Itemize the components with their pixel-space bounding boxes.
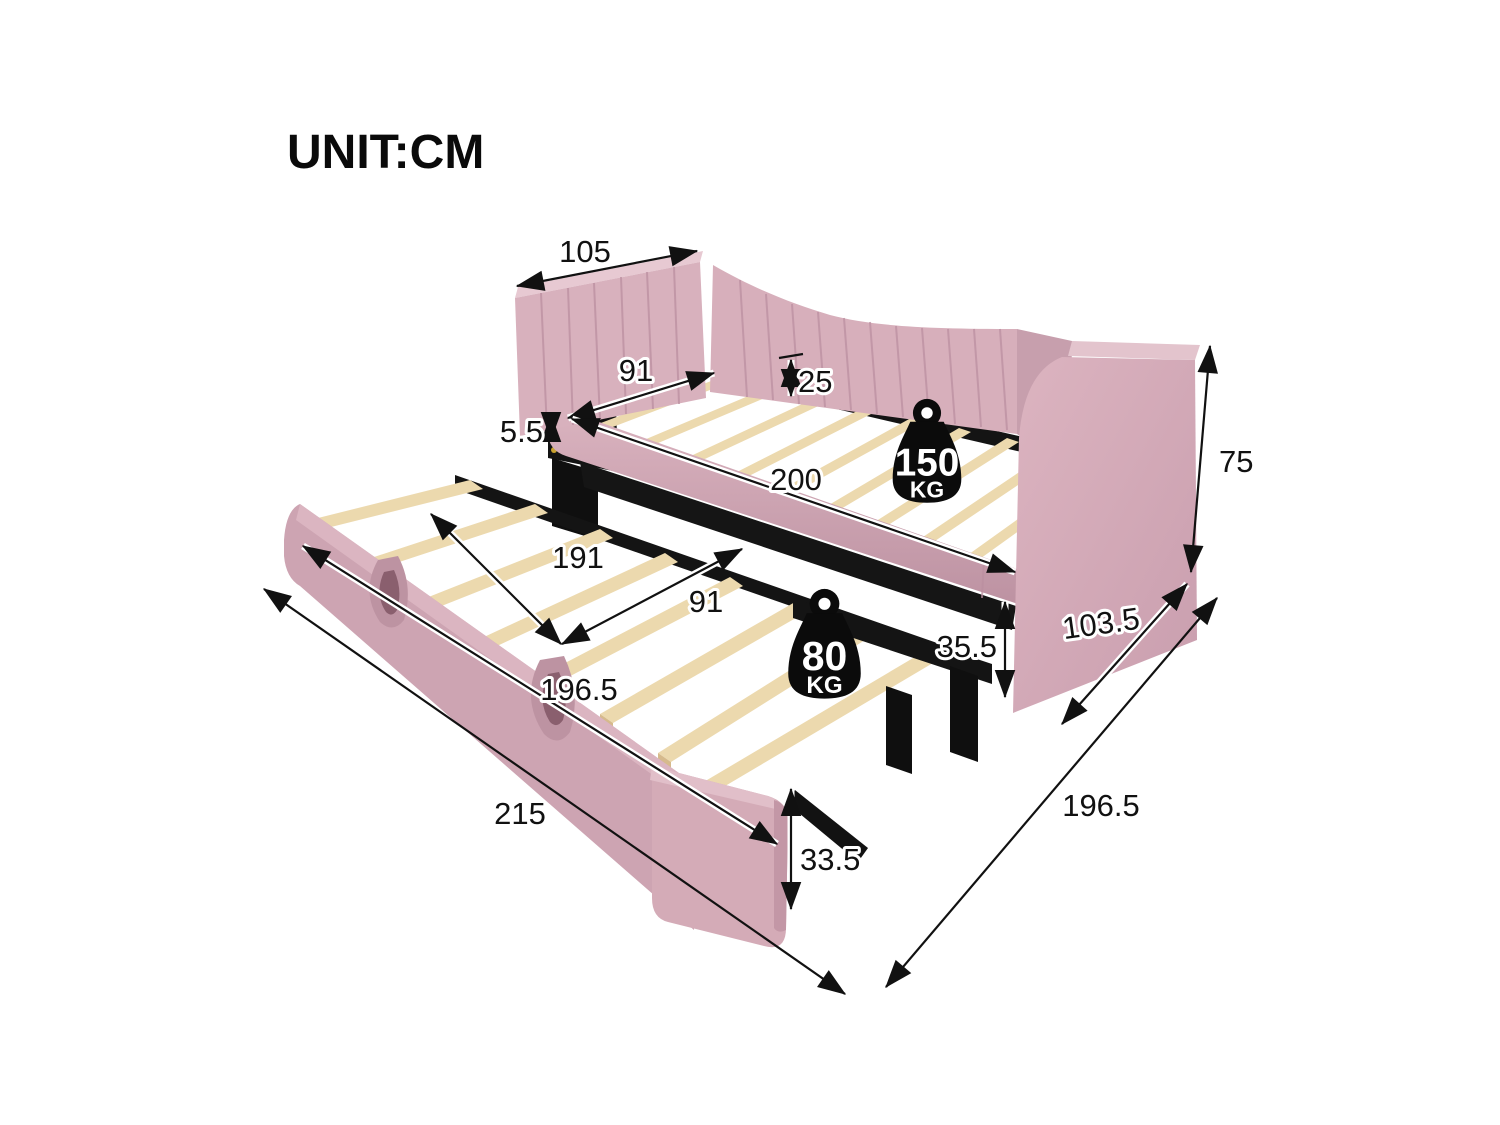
dim-trundle-frame-height-label: 35.5 [937, 629, 997, 664]
dim-trundle-length-label: 196.5 [540, 672, 618, 707]
dim-overall-length: 215 [264, 589, 845, 994]
unit-label: UNIT:CM [287, 126, 484, 179]
dim-footboard-height-label: 33.5 [800, 842, 860, 877]
daybed-diagram-svg: 150 KG 80 KG 105 91 25 [0, 0, 1500, 1125]
daybed-capacity-unit: KG [910, 476, 944, 502]
dim-back-height: 75 [1191, 346, 1253, 572]
dim-back-height-label: 75 [1219, 444, 1253, 479]
slat [600, 602, 808, 732]
dim-rail-thickness-label: 5.5 [500, 414, 543, 449]
dimension-diagram: 150 KG 80 KG 105 91 25 [0, 0, 1500, 1125]
dim-daybed-width-label: 91 [619, 353, 653, 388]
backrest-panel [710, 265, 1017, 434]
dim-trundle-inner-length-label: 191 [552, 540, 604, 575]
trundle-leg [886, 686, 912, 774]
dim-slat-height-label: 25 [798, 364, 832, 399]
dim-trundle-width-label: 91 [689, 584, 723, 619]
arm-top-edge [1068, 341, 1200, 360]
trundle-leg [950, 666, 978, 762]
trundle-footboard-edge [774, 800, 788, 932]
dim-daybed-length-label: 200 [770, 462, 822, 497]
dim-overall-length-label: 215 [494, 796, 546, 831]
trundle-capacity-unit: KG [806, 672, 842, 699]
dim-overall-depth-label: 196.5 [1062, 788, 1140, 823]
arm-panel [1013, 357, 1197, 713]
dim-headboard-width-label: 105 [559, 234, 611, 269]
slat [310, 480, 483, 538]
